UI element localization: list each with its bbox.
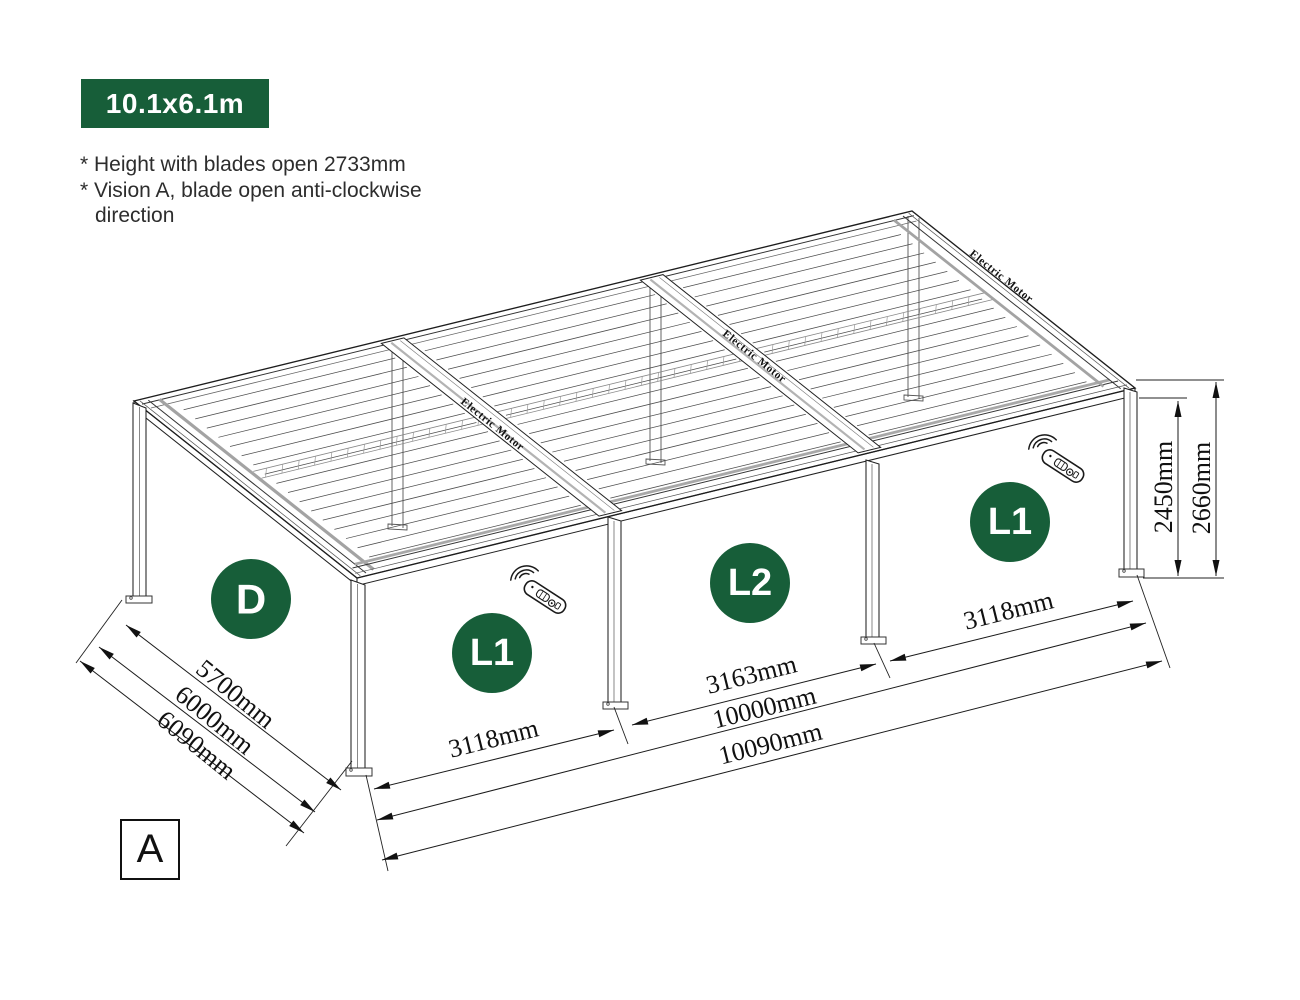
dim-label-3118-right: 3118mm: [960, 585, 1056, 635]
zone-badge-l1-left-label: L1: [470, 632, 514, 674]
zone-badge-d-label: D: [236, 576, 266, 623]
remote-control-icon: [506, 558, 575, 616]
dim-label-2660: 2660mm: [1187, 442, 1216, 534]
pergola-drawing: Electric Motor Electric Motor Electric M…: [0, 0, 1300, 1000]
zone-badge-l1-right: L1: [970, 482, 1050, 562]
diagram-page: 10.1x6.1m * Height with blades open 2733…: [0, 0, 1300, 1000]
dim-label-2450: 2450mm: [1149, 441, 1178, 533]
zone-badge-l1-right-label: L1: [988, 501, 1032, 543]
dim-label-3118-left: 3118mm: [445, 713, 541, 763]
remote-control-icon: [1024, 427, 1093, 485]
zone-badge-l2: L2: [710, 543, 790, 623]
zone-badge-l2-label: L2: [728, 562, 772, 604]
zone-badge-l1-left: L1: [452, 613, 532, 693]
zone-badge-d: D: [211, 559, 291, 639]
dimension-labels: 5700mm 6000mm 6090mm 3118mm 3163mm 3118m…: [152, 441, 1216, 786]
electric-motor-label-3: Electric Motor: [967, 248, 1035, 306]
